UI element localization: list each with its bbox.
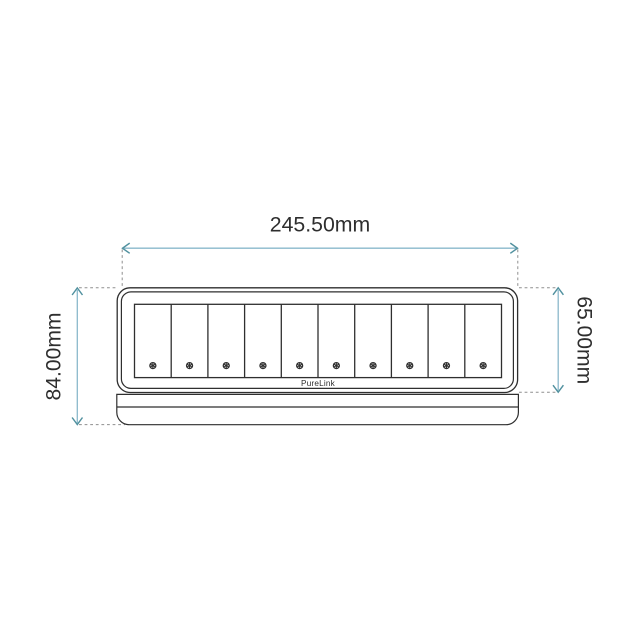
svg-text:245.50mm: 245.50mm (270, 212, 371, 236)
svg-text:PureLink: PureLink (301, 379, 336, 388)
svg-text:65.00mm: 65.00mm (572, 296, 596, 384)
svg-text:84.00mm: 84.00mm (42, 313, 66, 401)
